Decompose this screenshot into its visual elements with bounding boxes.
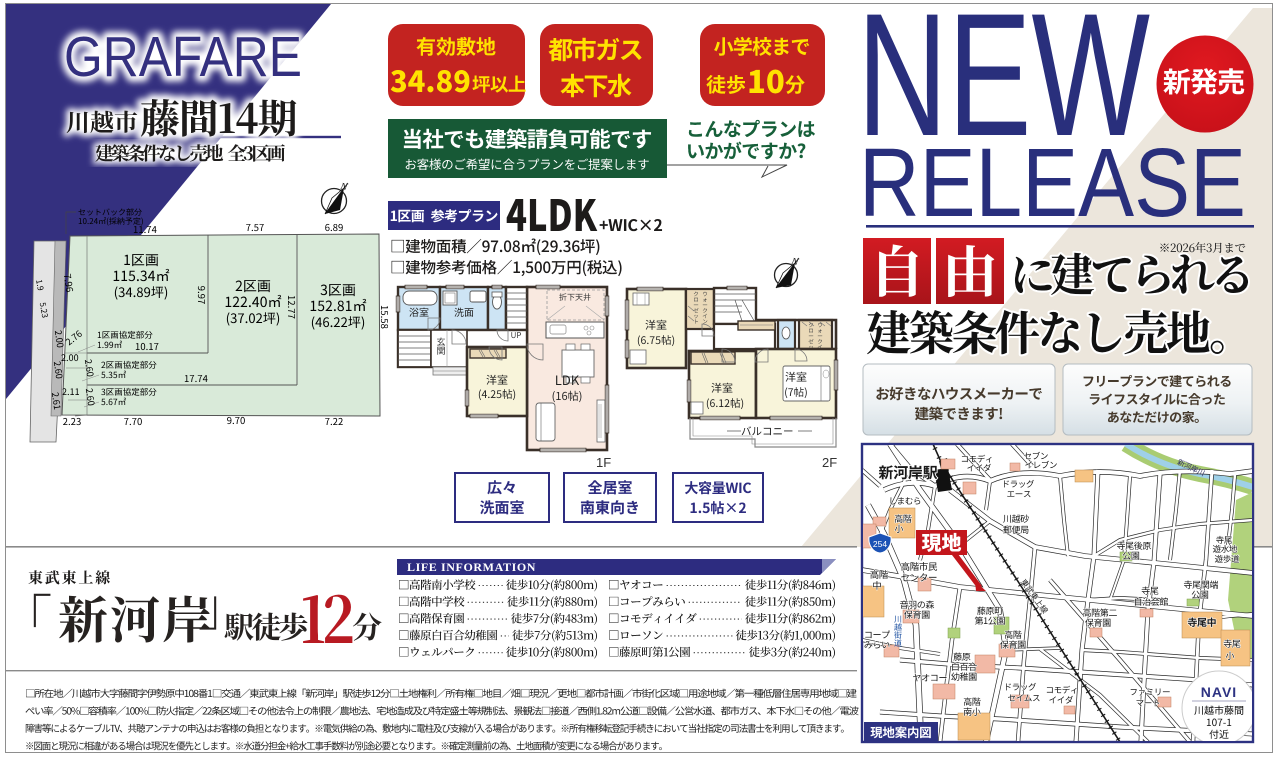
svg-text:GRAFARE: GRAFARE bbox=[64, 25, 302, 89]
svg-text:1F: 1F bbox=[596, 455, 611, 470]
svg-text:RELEASE: RELEASE bbox=[859, 128, 1246, 237]
svg-text:2F: 2F bbox=[822, 455, 837, 470]
svg-text:NAVI: NAVI bbox=[1201, 684, 1237, 700]
svg-text:LIFE INFORMATION: LIFE INFORMATION bbox=[407, 560, 536, 574]
svg-text:254: 254 bbox=[873, 539, 887, 549]
